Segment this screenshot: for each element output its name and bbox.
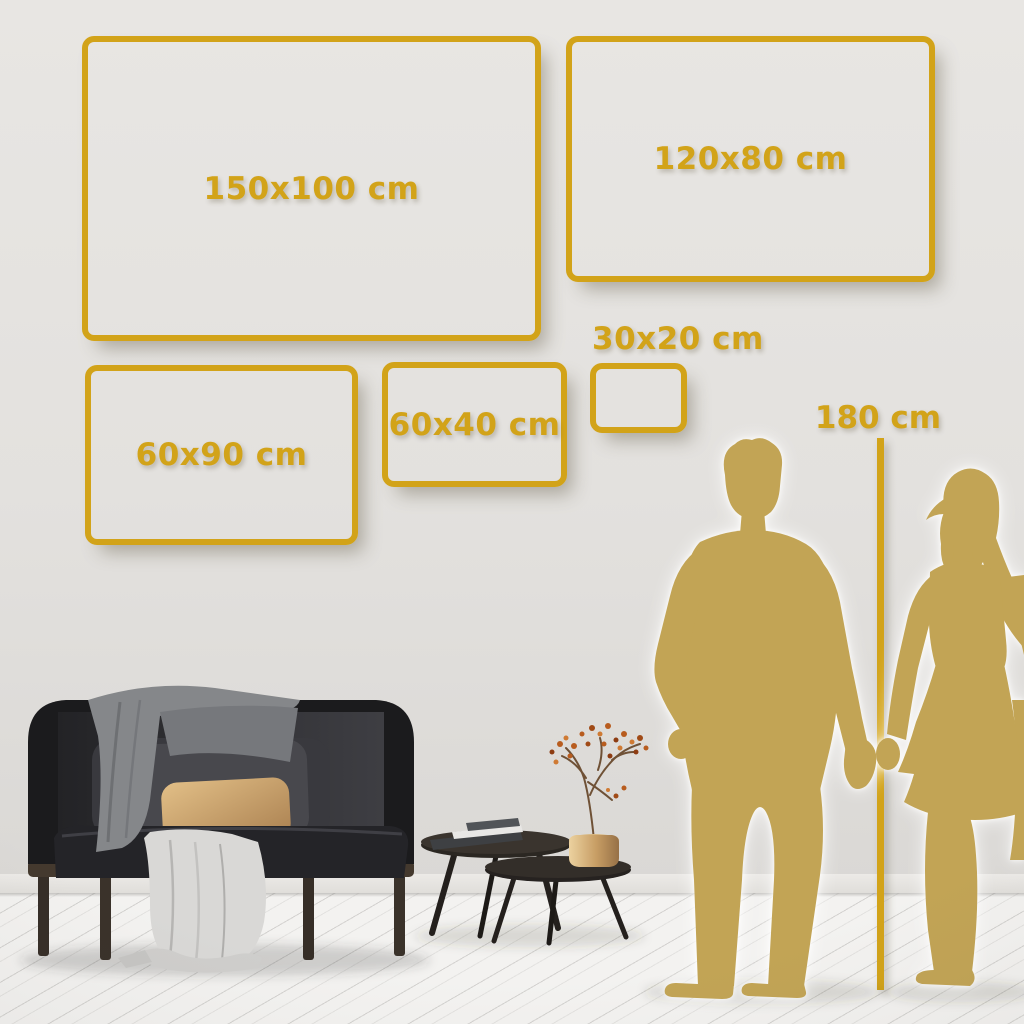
wall-art-size-guide: 150x100 cm 120x80 cm 60x90 cm 60x40 cm 3… <box>0 0 1024 1024</box>
man-silhouette <box>654 438 876 999</box>
couple-silhouette <box>0 0 1024 1024</box>
woman-silhouette <box>876 468 1024 986</box>
